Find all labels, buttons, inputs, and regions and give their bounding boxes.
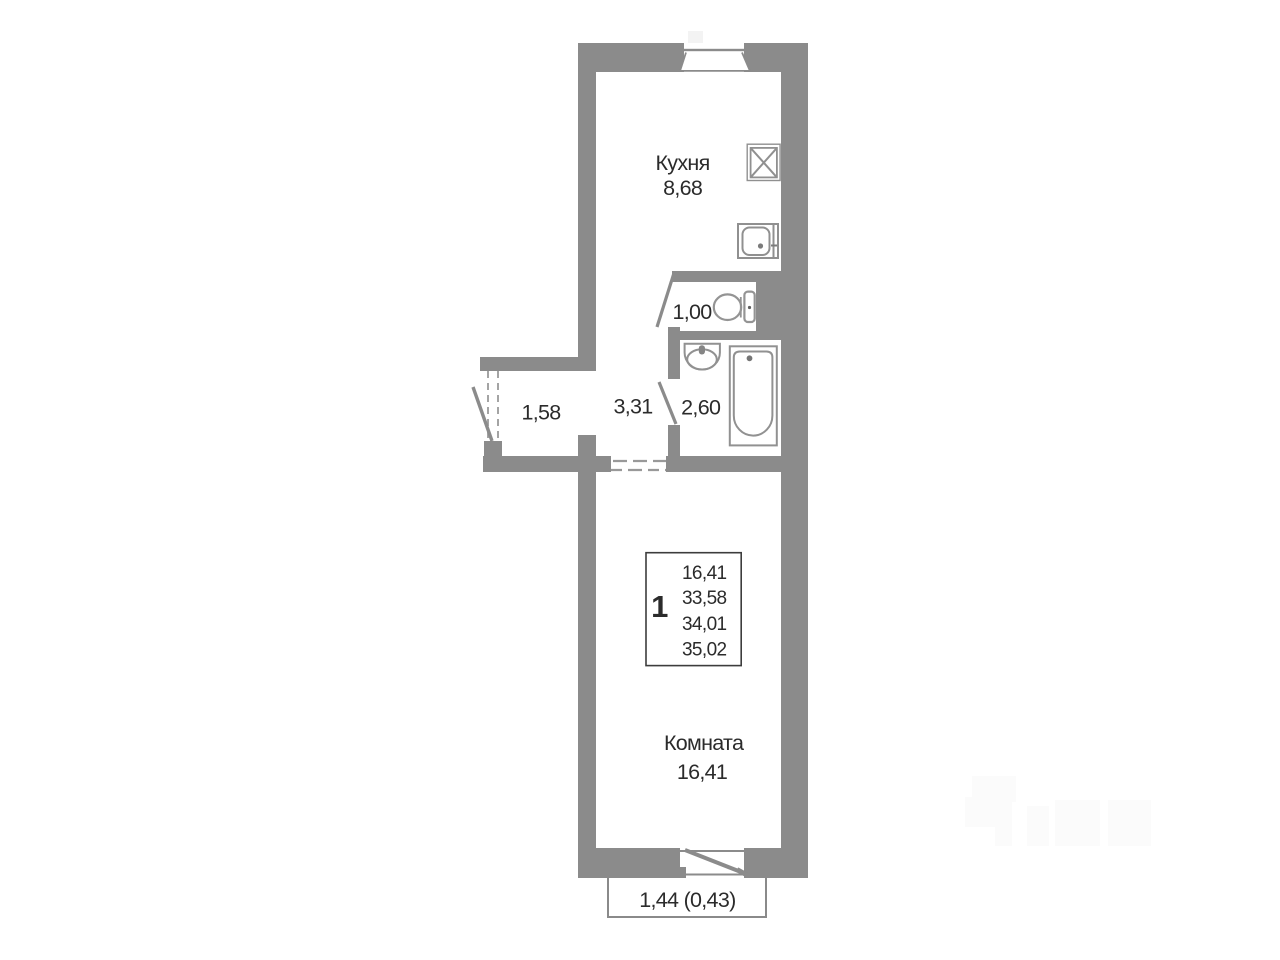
svg-text:1,58: 1,58 xyxy=(521,401,561,425)
svg-text:1,00: 1,00 xyxy=(672,300,712,324)
svg-text:1: 1 xyxy=(651,589,668,624)
svg-text:Кухня: Кухня xyxy=(655,151,709,175)
svg-text:3,31: 3,31 xyxy=(613,395,652,419)
svg-text:33,58: 33,58 xyxy=(682,588,727,609)
svg-text:16,41: 16,41 xyxy=(682,563,727,584)
svg-text:35,02: 35,02 xyxy=(682,640,727,661)
svg-text:1,44 (0,43): 1,44 (0,43) xyxy=(639,888,735,912)
svg-text:8,68: 8,68 xyxy=(663,176,703,200)
svg-text:34,01: 34,01 xyxy=(682,614,727,635)
svg-text:2,60: 2,60 xyxy=(681,396,721,420)
svg-text:16,41: 16,41 xyxy=(677,760,727,784)
svg-text:Комната: Комната xyxy=(664,731,744,755)
